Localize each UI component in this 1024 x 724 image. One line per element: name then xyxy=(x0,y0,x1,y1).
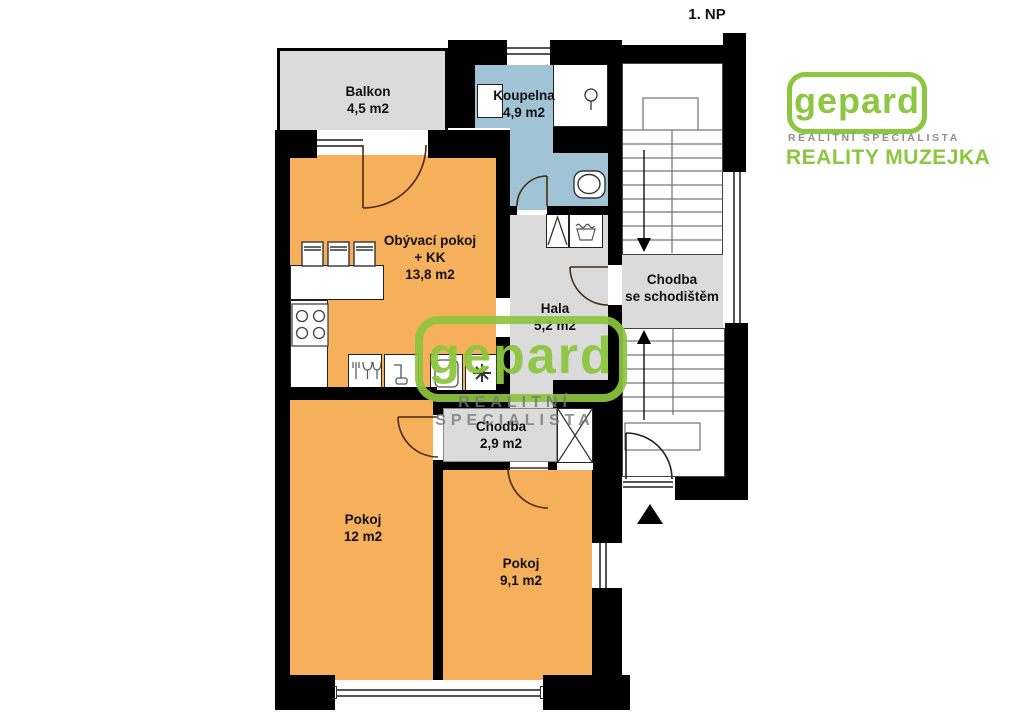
entrance-arrow xyxy=(637,504,663,524)
brand-tagline: REALITNÍ SPECIALISTA xyxy=(788,132,960,144)
watermark-tagline: REALITNÍ SPECIALISTA xyxy=(408,394,622,430)
wall xyxy=(592,588,622,680)
room-floor-koupelna-mid xyxy=(510,128,553,154)
room-label-balkon: Balkon4,5 m2 xyxy=(312,84,424,118)
wall xyxy=(553,127,608,153)
room-floor-koupelna-lower xyxy=(510,152,608,210)
wardrobe xyxy=(546,214,569,248)
wall xyxy=(510,206,517,215)
side-window-recess xyxy=(592,543,622,588)
wall xyxy=(496,153,510,298)
wall xyxy=(547,206,608,215)
bottom-window xyxy=(335,689,543,697)
room-label-obyvaci-pokoj: Obývací pokoj+ KK13,8 m2 xyxy=(369,233,491,284)
kitchen-counter-side xyxy=(290,300,328,395)
floor-plan: Balkon4,5 m2 Koupelna4,9 m2 Obývací poko… xyxy=(0,0,1024,724)
watermark-logo-text: gepard xyxy=(428,330,613,382)
brand-logo-frame: gepard xyxy=(787,72,927,134)
wall xyxy=(443,462,510,470)
brand-logo-text: gepard xyxy=(794,83,920,119)
watermark-logo-frame: gepard xyxy=(415,316,627,402)
entrance-threshold xyxy=(623,481,673,488)
wall xyxy=(608,63,622,265)
balcony-window xyxy=(317,139,363,147)
wall xyxy=(725,323,748,500)
wall xyxy=(448,63,475,128)
wall xyxy=(448,40,507,65)
wall xyxy=(433,460,443,680)
wall xyxy=(275,675,335,710)
pokoj-side-window xyxy=(599,543,607,588)
room-label-pokoj-9-1: Pokoj9,1 m2 xyxy=(477,556,565,590)
room-label-koupelna: Koupelna4,9 m2 xyxy=(474,88,574,122)
wall xyxy=(543,675,630,710)
wall xyxy=(592,470,622,543)
wall xyxy=(723,33,746,172)
brand-agency-name: REALITY MUZEJKA xyxy=(786,146,990,170)
room-label-chodba-se-schodistem: Chodbase schodištěm xyxy=(610,272,734,306)
bathroom-window xyxy=(507,47,550,55)
wall xyxy=(275,130,317,158)
wall xyxy=(275,130,290,710)
staircase-upper-floor xyxy=(622,63,723,255)
washing-machine xyxy=(569,214,603,248)
wall xyxy=(548,462,557,470)
room-label-pokoj-12: Pokoj12 m2 xyxy=(319,512,407,546)
staircase-lower-floor xyxy=(622,328,725,477)
stairwell-window xyxy=(733,172,741,323)
floor-label: 1. NP xyxy=(667,6,747,23)
